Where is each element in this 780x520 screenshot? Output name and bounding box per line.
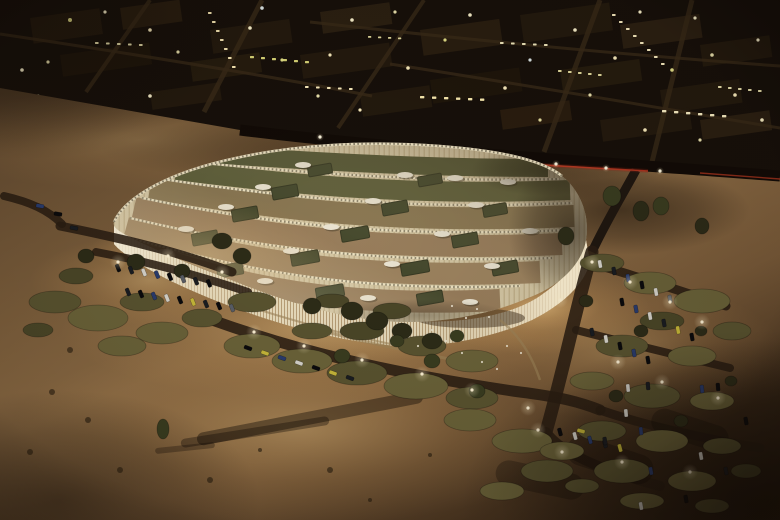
rendering-canvas [0, 0, 780, 520]
scene-rendering [0, 0, 780, 520]
